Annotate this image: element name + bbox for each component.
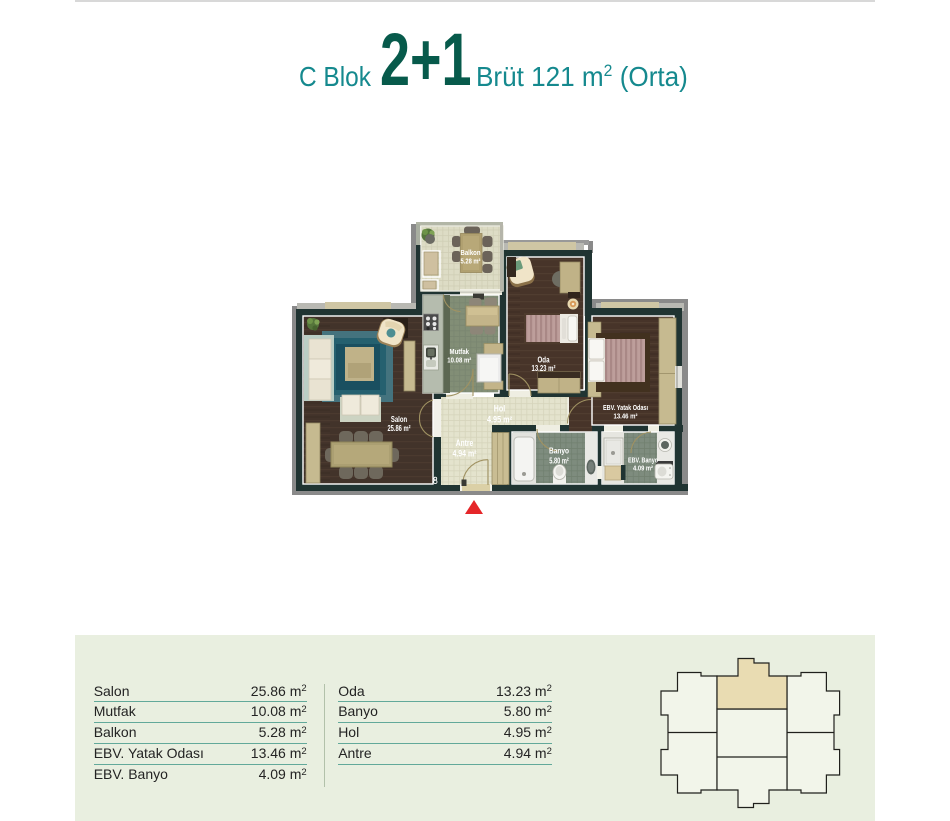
svg-text:13.23 m²: 13.23 m² xyxy=(532,364,556,373)
svg-text:5.80 m²: 5.80 m² xyxy=(549,456,569,466)
svg-text:4.94 m²: 4.94 m² xyxy=(453,449,477,459)
svg-text:5.28 m²: 5.28 m² xyxy=(461,256,481,265)
svg-text:4.95 m²: 4.95 m² xyxy=(487,414,512,424)
svg-text:Banyo: Banyo xyxy=(549,445,569,455)
svg-text:Salon: Salon xyxy=(391,415,407,424)
svg-text:10.08 m²: 10.08 m² xyxy=(447,355,471,364)
svg-text:13.46 m²: 13.46 m² xyxy=(614,412,638,421)
svg-text:25.86 m²: 25.86 m² xyxy=(387,424,410,433)
svg-text:4.09 m²: 4.09 m² xyxy=(633,464,653,473)
svg-text:Hol: Hol xyxy=(494,404,506,414)
svg-text:Antre: Antre xyxy=(456,438,474,448)
